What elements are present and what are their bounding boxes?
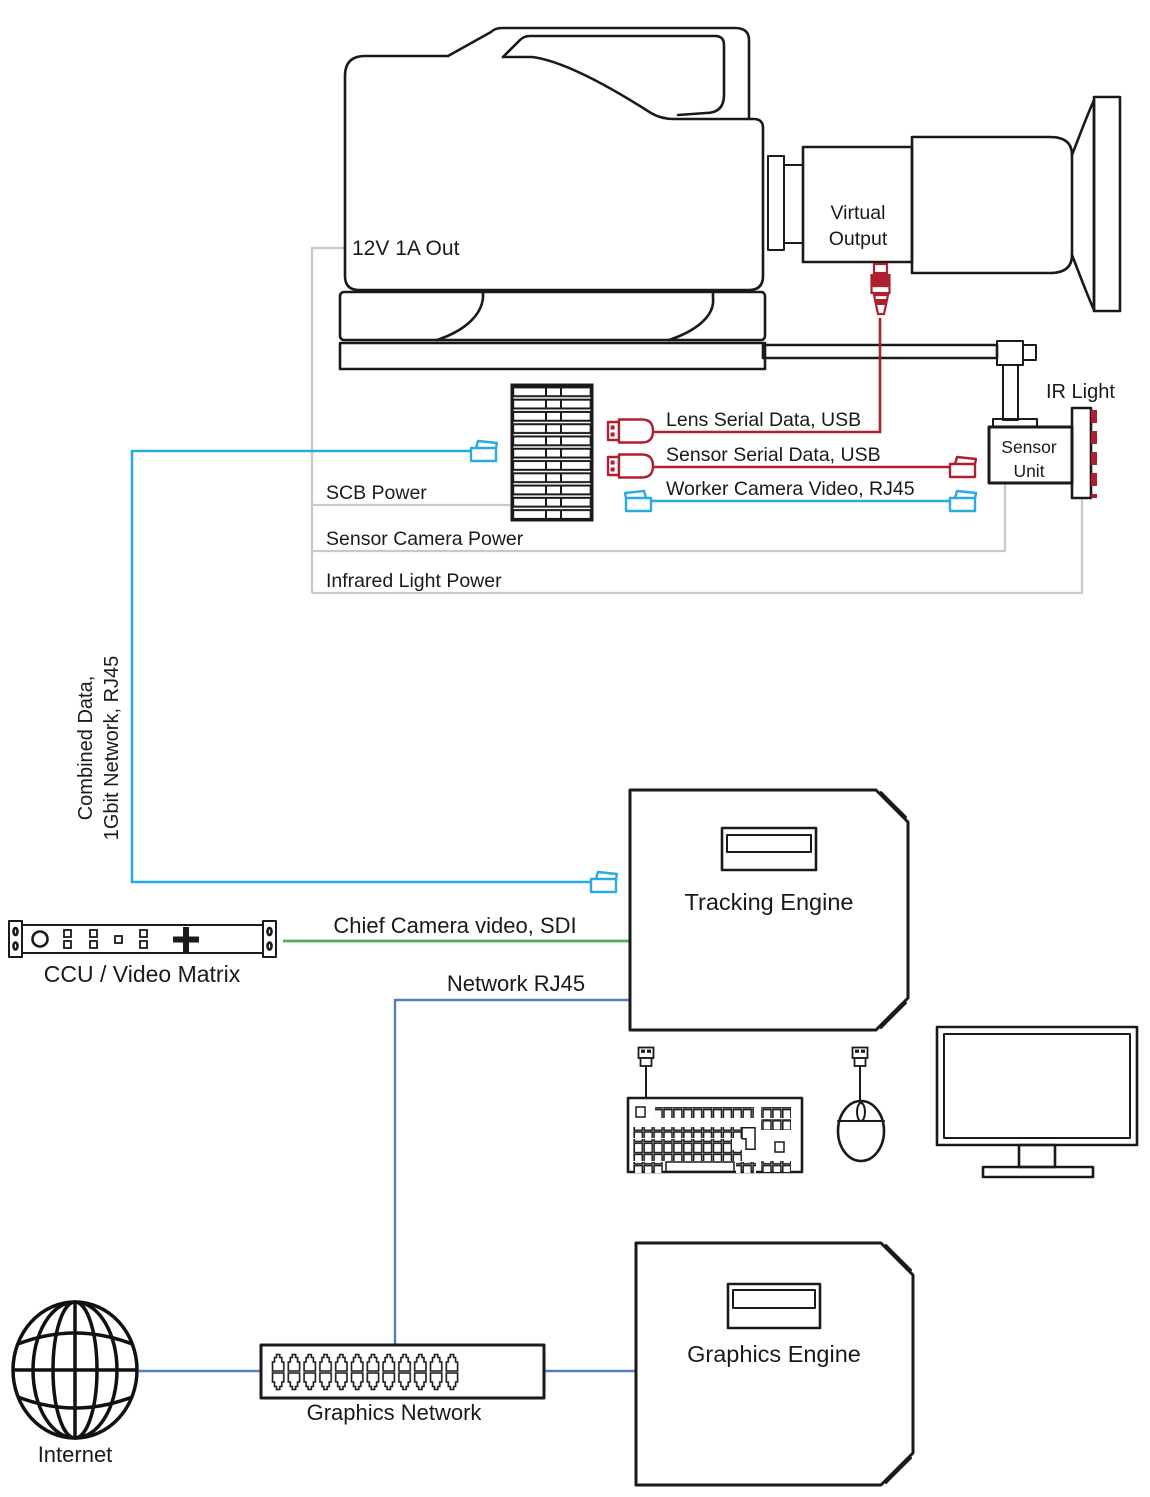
sensor-post <box>1003 365 1018 420</box>
ccu-cross <box>173 927 199 952</box>
graphics-engine-label: Graphics Engine <box>687 1341 861 1367</box>
svg-text:1Gbit Network, RJ45: 1Gbit Network, RJ45 <box>101 656 123 841</box>
rail-bracket <box>997 341 1023 365</box>
lens-hood-plate <box>1094 97 1120 311</box>
virtual-output-label-2: Output <box>829 228 888 250</box>
network-line <box>395 1000 630 1345</box>
sensor-serial-label: Sensor Serial Data, USB <box>666 444 881 466</box>
ccu-label: CCU / Video Matrix <box>44 961 241 987</box>
network-switch: Graphics Network <box>261 1345 544 1425</box>
keyboard <box>628 1048 802 1174</box>
usb-plug-lens <box>608 420 653 443</box>
wedge-notch-right <box>669 292 713 340</box>
mouse-usb-plug <box>853 1048 868 1067</box>
graphics-engine: Graphics Engine <box>636 1243 913 1485</box>
camera-base-plate <box>340 343 765 369</box>
scb-power-label: SCB Power <box>326 482 427 504</box>
sensor-unit-label-1: Sensor <box>1001 437 1057 457</box>
usb-plug-sensor <box>608 455 653 478</box>
viewfinder-mount-1 <box>768 156 784 250</box>
camera-wedge-plate <box>340 292 765 340</box>
worker-video-label: Worker Camera Video, RJ45 <box>666 478 915 500</box>
mouse-scroll-wheel <box>857 1103 865 1121</box>
ccu-video-matrix: CCU / Video Matrix <box>9 921 276 987</box>
rj45-plug-sensor-unit <box>950 457 976 477</box>
ccu-ear-left <box>9 921 22 957</box>
rj45-plug-worker-left <box>625 491 651 511</box>
ir-light-panel <box>1072 408 1091 498</box>
virtual-output-plug <box>872 264 890 314</box>
mouse <box>838 1048 884 1162</box>
keyboard-usb-plug <box>639 1048 654 1067</box>
internet-globe: Internet <box>13 1302 137 1467</box>
sensor-unit-label-2: Unit <box>1013 461 1044 481</box>
studio-camera: 12V 1A Out Virtual Output <box>340 28 1120 369</box>
chief-video-label: Chief Camera video, SDI <box>333 913 576 938</box>
virtual-output-label-1: Virtual <box>831 202 886 224</box>
viewfinder-mount-2 <box>784 165 803 243</box>
monitor-neck <box>1019 1145 1055 1167</box>
rj45-plug-worker-right <box>950 491 976 511</box>
monitor-base <box>983 1167 1093 1177</box>
lens-serial-label: Lens Serial Data, USB <box>666 409 861 431</box>
rj45-plug-tracking <box>591 872 617 892</box>
graphics-network-label: Graphics Network <box>307 1400 483 1425</box>
ccu-ear-right <box>263 921 276 957</box>
lens-body <box>912 137 1072 273</box>
lens-hood-flare <box>1072 100 1094 310</box>
infrared-power-label: Infrared Light Power <box>326 570 502 592</box>
sensor-camera-power-label: Sensor Camera Power <box>326 528 524 550</box>
camera-handle-outer <box>448 28 749 119</box>
monitor <box>937 1027 1137 1177</box>
tracking-engine: Tracking Engine <box>630 790 908 1030</box>
scb-breakout-box <box>512 385 592 520</box>
wedge-notch-left <box>437 292 483 340</box>
camera-handle-inner <box>503 36 724 115</box>
svg-text:Combined Data,: Combined Data, <box>75 676 97 821</box>
ccu-knob <box>33 932 48 947</box>
tracking-engine-label: Tracking Engine <box>685 889 854 915</box>
network-label: Network RJ45 <box>447 971 585 996</box>
diagram-canvas: 12V 1A Out Virtual Output Sensor Unit IR… <box>0 0 1150 1497</box>
combined-data-label: Combined Data, 1Gbit Network, RJ45 <box>75 656 123 841</box>
rj45-plug-scb <box>471 441 497 461</box>
camera-power-label: 12V 1A Out <box>352 237 460 260</box>
rail-bracket-tab <box>1023 345 1036 360</box>
ir-light-label: IR Light <box>1046 381 1115 403</box>
ccu-buttons <box>64 930 147 948</box>
internet-label: Internet <box>38 1442 113 1467</box>
